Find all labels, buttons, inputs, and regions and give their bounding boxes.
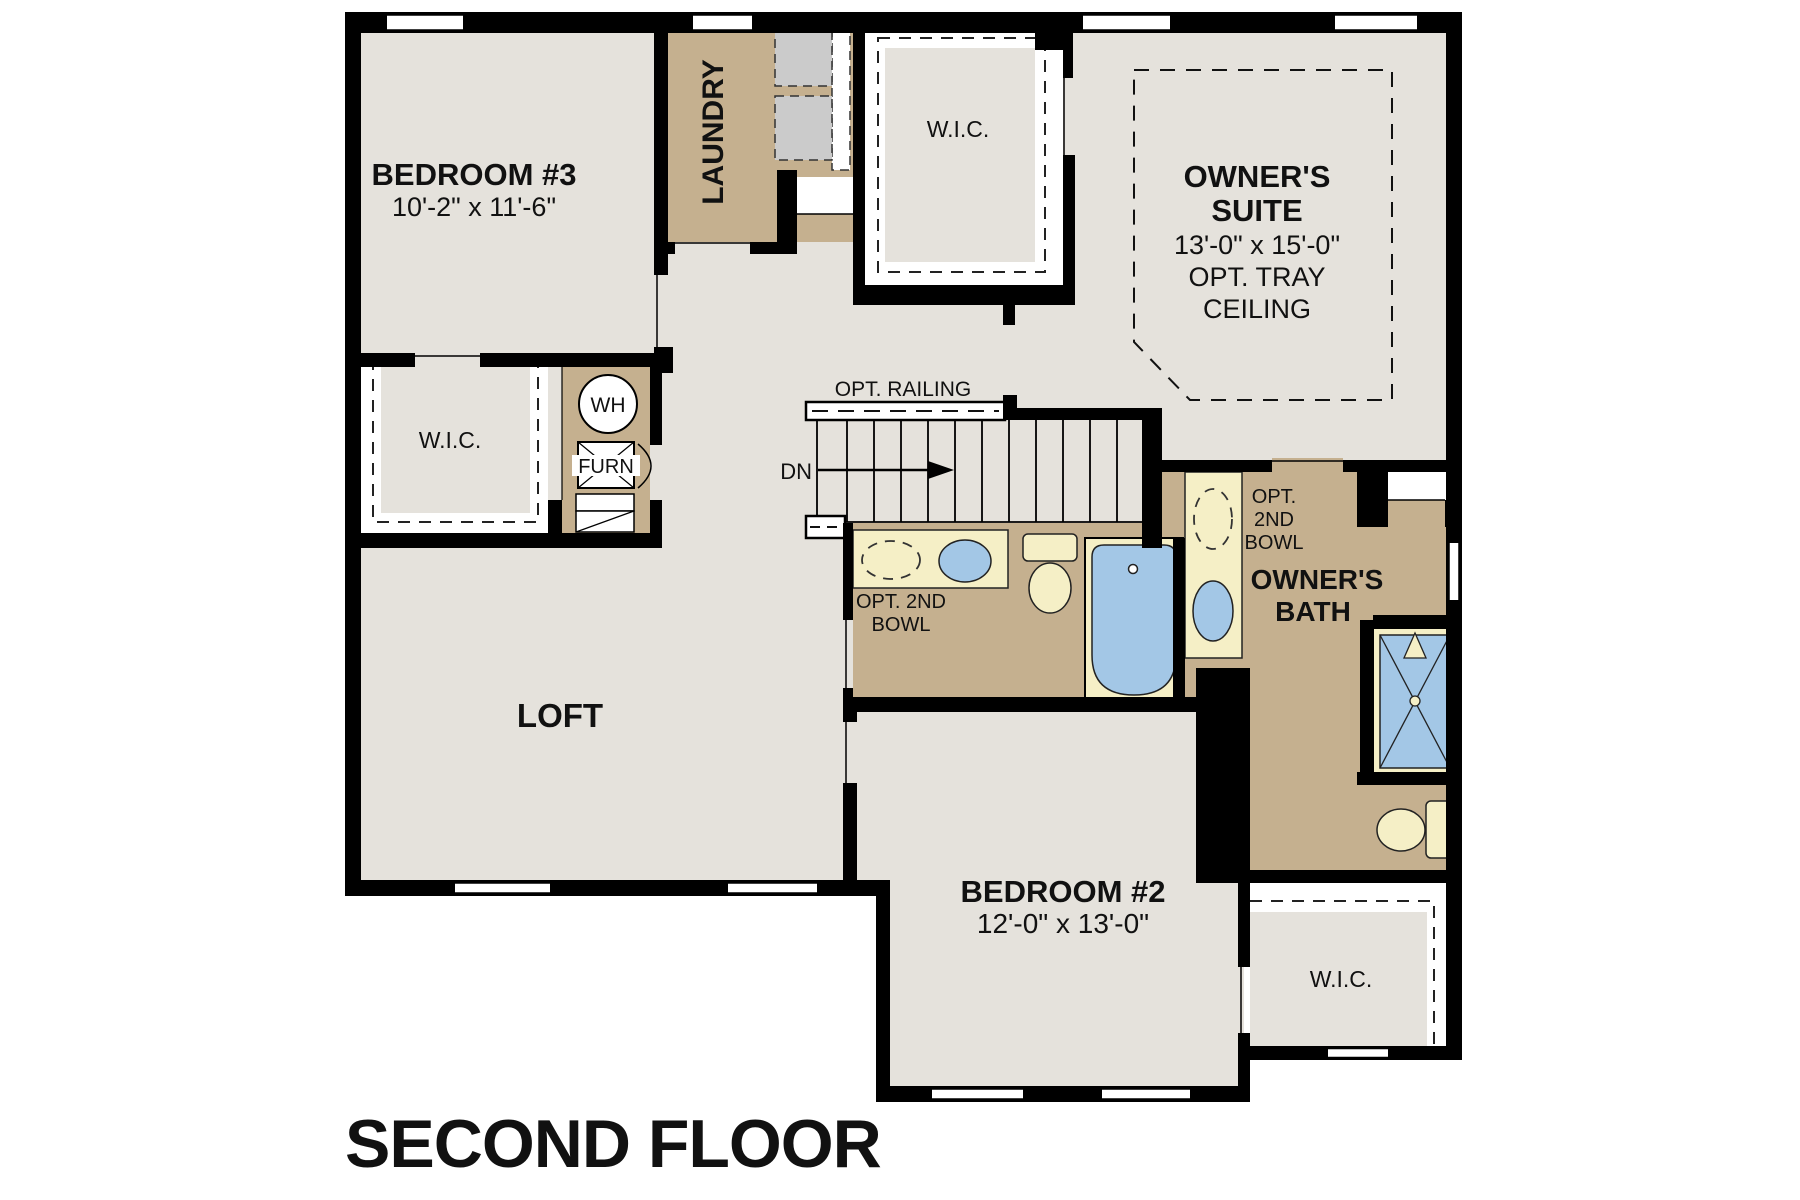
bedroom2-label: BEDROOM #2 [961, 874, 1166, 909]
window [1083, 14, 1170, 32]
wall-exterior-left [345, 12, 361, 896]
furnace-platform [576, 494, 634, 511]
window [932, 1088, 1023, 1101]
wic-bedroom2-label: W.I.C. [1310, 966, 1373, 992]
wall-bedroom2-top [843, 697, 1250, 712]
water-heater-label: WH [591, 394, 626, 417]
owners-bath-sink [1193, 581, 1233, 641]
page-title: SECOND FLOOR [345, 1106, 881, 1182]
wall-owners-bath-bottom [1238, 870, 1462, 883]
owners-suite-opt-2: CEILING [1203, 294, 1311, 324]
wall-exterior-top [345, 12, 1460, 33]
wic-owners-door-recess [797, 177, 853, 214]
owners-toilet-bowl [1377, 809, 1425, 851]
hall-bath-toilet-tank [1023, 534, 1077, 561]
window [728, 882, 817, 895]
dryer-icon [775, 96, 832, 160]
owners-bath-door-gap [1272, 458, 1343, 472]
owners-bath-opt-bowl-2: 2ND [1254, 509, 1294, 531]
furnace-label: FURN [578, 456, 634, 478]
laundry-counter [832, 24, 850, 170]
wall-exterior-right [1446, 12, 1462, 1060]
wall-wic-bedroom3-bottom [361, 533, 662, 548]
laundry-label: LAUNDRY [697, 59, 730, 205]
bedroom3-label: BEDROOM #3 [372, 157, 577, 192]
hall-bath-tub-drain [1129, 565, 1138, 574]
window [387, 14, 463, 32]
wall-wic-owners-left [853, 33, 865, 291]
wall-bedroom2-right-upper [1238, 712, 1250, 967]
hall-bath-opt-bowl-2: BOWL [872, 614, 931, 636]
wall-bedroom2-left-exterior [876, 880, 890, 1102]
washer-icon [775, 28, 832, 86]
owners-suite-dims: 13'-0" x 15'-0" [1174, 230, 1340, 260]
window [693, 14, 752, 32]
stairs-down-label: DN [780, 459, 812, 484]
wall-bedroom3-right [654, 33, 668, 275]
bedroom3-dims: 10'-2" x 11'-6" [392, 192, 556, 222]
window [1328, 1047, 1388, 1059]
owners-shower-drain [1410, 696, 1420, 706]
hall-bath-toilet-bowl [1029, 563, 1071, 613]
wic-owners-label: W.I.C. [927, 116, 990, 142]
owners-bath-opt-bowl-3: BOWL [1245, 532, 1304, 554]
wic-owners-inset [885, 48, 1035, 262]
wall-bedroom2-left-interior [843, 783, 857, 880]
opt-railing-label: OPT. RAILING [835, 378, 972, 401]
owners-bath-opt-bowl-1: OPT. [1252, 486, 1296, 508]
loft-label: LOFT [517, 697, 603, 734]
owners-bath-label-1: OWNER'S [1251, 564, 1384, 595]
window [455, 882, 550, 895]
window [1448, 543, 1461, 600]
wall-stair-top [1015, 408, 1150, 420]
hall-bath-opt-bowl-1: OPT. 2ND [856, 591, 946, 613]
wall-wic-owners-bottom [853, 285, 1075, 305]
owners-bath-label-2: BATH [1275, 596, 1351, 627]
owners-suite-label-1: OWNER'S [1184, 159, 1331, 194]
floor-plan-page: BEDROOM #3 10'-2" x 11'-6" LAUNDRY W.I.C… [0, 0, 1800, 1200]
window [1335, 14, 1417, 32]
floor-plan-svg: BEDROOM #3 10'-2" x 11'-6" LAUNDRY W.I.C… [0, 0, 1800, 1200]
window [1102, 1088, 1190, 1101]
owners-suite-label-2: SUITE [1211, 193, 1302, 228]
wall-bedroom2-right-lower [1238, 1033, 1250, 1086]
owners-suite-opt-1: OPT. TRAY [1188, 262, 1325, 292]
linen-closet [1388, 472, 1446, 500]
hall-bath-sink [939, 540, 991, 582]
wall-stair-right [1142, 408, 1162, 548]
bedroom2-dims: 12'-0" x 13'-0" [977, 908, 1149, 939]
wic-bedroom3-label: W.I.C. [419, 427, 482, 453]
